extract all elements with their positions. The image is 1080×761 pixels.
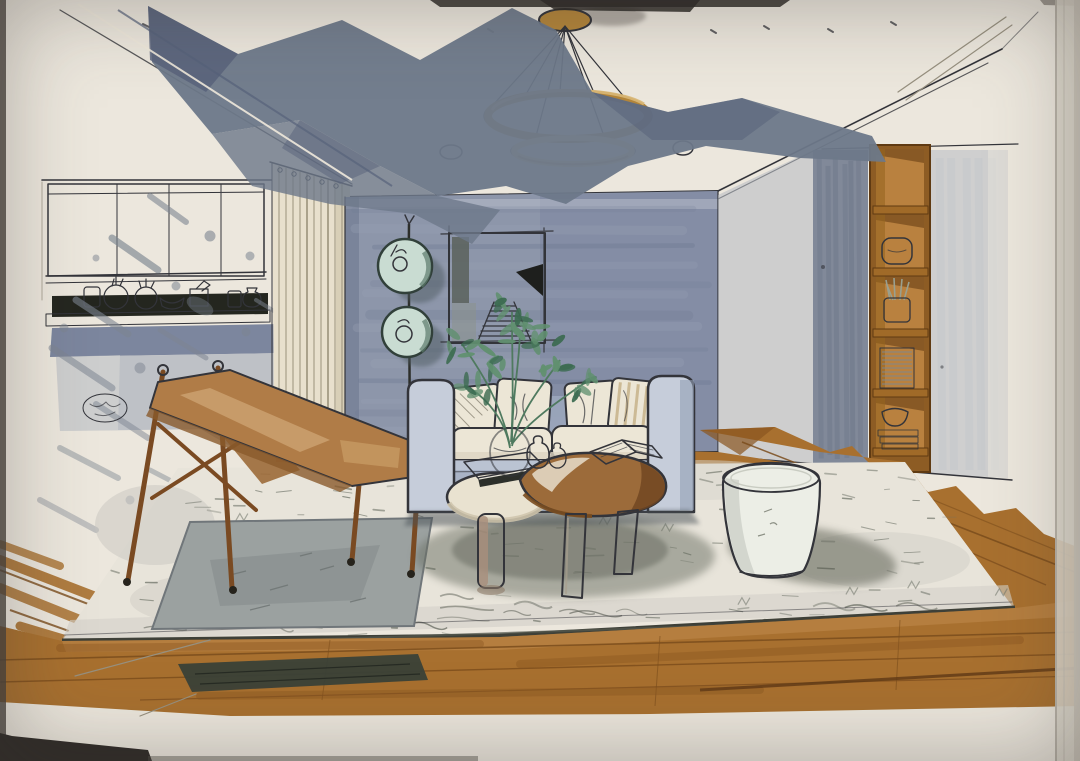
art-dark-strip <box>452 237 469 303</box>
right-wall-wash <box>718 150 813 470</box>
photo-edge-left <box>0 0 6 761</box>
floor-mat <box>152 518 432 629</box>
photographed-sketch <box>0 0 1080 761</box>
built-in-shelving <box>870 145 930 472</box>
interior-sketch <box>0 0 1080 761</box>
